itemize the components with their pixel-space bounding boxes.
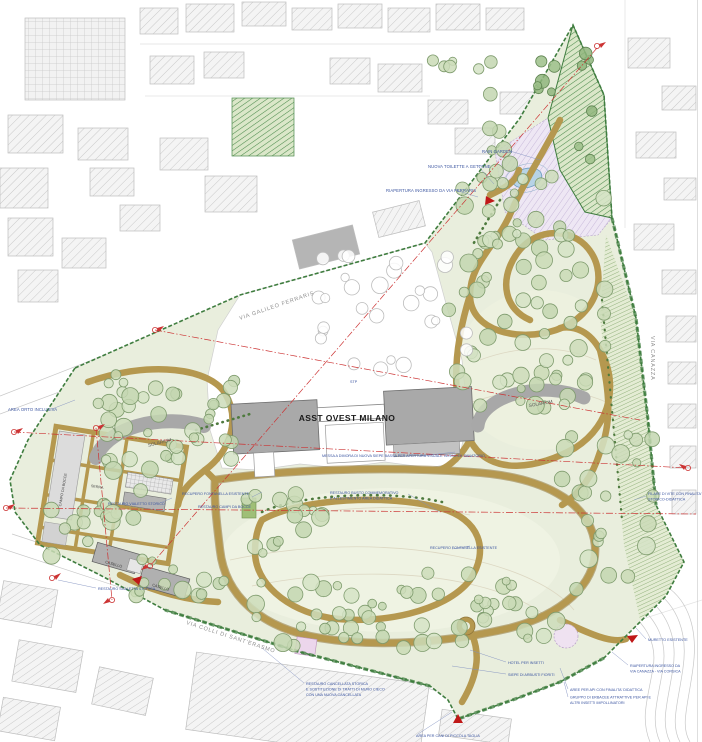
tree: [621, 570, 635, 584]
tree: [397, 641, 411, 655]
tree: [529, 377, 544, 392]
tree: [483, 121, 498, 136]
building-block: [8, 115, 63, 153]
label-area-orto: AREA ORTO INCLUSIVA: [8, 407, 57, 412]
tree: [559, 399, 570, 410]
building-block: [120, 205, 160, 231]
tree: [396, 357, 411, 372]
building-block: [18, 270, 58, 302]
tree: [126, 510, 141, 525]
tree: [560, 269, 572, 281]
tree: [401, 586, 413, 598]
tree: [138, 392, 150, 404]
building-block: [373, 201, 426, 238]
tree: [540, 354, 554, 368]
tree: [318, 322, 330, 334]
tree: [161, 450, 172, 461]
tree: [196, 589, 207, 600]
building-block: [388, 8, 430, 32]
label-ingresso-sud-2: VIA CANAZZA - VIA CORSICA: [630, 670, 681, 674]
tree: [252, 613, 261, 622]
building-block: [186, 4, 234, 32]
tree: [423, 287, 437, 301]
tree: [513, 230, 521, 238]
building-block: [670, 446, 696, 468]
tree: [111, 370, 121, 380]
tree: [151, 407, 167, 423]
tree: [596, 190, 612, 206]
tree: [518, 174, 529, 185]
hospital-west-wing: [231, 400, 319, 454]
tree: [474, 64, 484, 74]
tree: [204, 414, 214, 424]
tree: [497, 178, 508, 189]
tree: [415, 286, 425, 296]
building-block: [25, 18, 125, 100]
tree: [504, 197, 519, 212]
tree: [580, 470, 597, 487]
tree: [532, 275, 547, 290]
tree: [451, 620, 467, 636]
tree: [579, 47, 592, 60]
tree: [477, 613, 491, 627]
tree: [257, 579, 266, 588]
tree: [461, 567, 476, 582]
tree: [197, 572, 212, 587]
tree: [572, 262, 588, 278]
tree: [43, 547, 60, 564]
tree: [259, 549, 268, 558]
building-block: [634, 224, 674, 250]
tree: [513, 367, 529, 383]
building-block: [636, 132, 676, 158]
tree: [556, 439, 574, 457]
tree: [543, 304, 558, 319]
label-stp: STP: [350, 380, 358, 384]
tree: [570, 340, 587, 357]
building-block: [428, 100, 468, 124]
tree: [104, 462, 122, 480]
label-filare-2: STORICO-DIDATTICA: [648, 498, 686, 502]
tree: [134, 484, 148, 498]
building-block: [92, 667, 154, 716]
tree: [344, 588, 359, 603]
building-block: [78, 128, 128, 160]
tree: [376, 630, 389, 643]
tree: [493, 375, 507, 389]
tree: [578, 486, 591, 499]
tree: [460, 254, 478, 272]
tree: [485, 56, 498, 69]
tree: [575, 142, 584, 151]
label-filare-1: FILARE DI VITE CON FINALITA': [648, 492, 702, 496]
tree: [342, 250, 355, 263]
building-block: [668, 362, 696, 384]
tree: [315, 333, 326, 344]
tree: [612, 445, 630, 463]
tree: [333, 607, 347, 621]
building-block: [204, 52, 244, 78]
tree: [483, 177, 498, 192]
tree: [273, 492, 288, 507]
tree: [563, 230, 575, 242]
tree: [249, 489, 262, 502]
tree: [624, 431, 633, 440]
label-fontanella-1: RECUPERO FONTANELLA ESISTENTE: [182, 492, 250, 496]
tree: [312, 509, 330, 527]
tree: [224, 452, 239, 467]
tree: [585, 154, 595, 164]
label-siepe: SIEPE DI ARBUSTI FIORITI: [508, 673, 555, 677]
tree: [645, 432, 660, 447]
tree: [189, 433, 199, 443]
building-block: [330, 58, 370, 84]
building-block: [242, 2, 286, 26]
label-busto-2: E ALLESTIMENTO AREA DIDATTICA: [330, 497, 393, 501]
tree: [142, 461, 159, 478]
tree: [536, 252, 553, 269]
label-ingresso-sud-1: RIAPERTURA INGRESSO DA: [630, 664, 681, 668]
tree: [321, 294, 330, 303]
tree: [535, 178, 547, 190]
tree: [510, 189, 518, 197]
building-block: [205, 176, 257, 212]
tree: [137, 554, 148, 565]
tree: [460, 327, 472, 339]
tree: [601, 567, 617, 583]
label-busto-1: RESTAURO BUSTO COMMEMORATIVO: [330, 491, 399, 495]
tree: [219, 434, 231, 446]
central-lawn: [220, 488, 560, 632]
tree: [482, 272, 492, 282]
tree: [320, 623, 331, 634]
tree: [427, 55, 438, 66]
tree: [599, 340, 611, 352]
building-block: [160, 138, 208, 170]
building-block: [62, 238, 106, 268]
tree: [426, 633, 442, 649]
tree: [545, 170, 558, 183]
tree: [577, 375, 592, 390]
tree: [539, 329, 549, 339]
tree: [587, 106, 598, 117]
tree: [528, 211, 544, 227]
tree: [333, 581, 342, 590]
tree: [372, 277, 389, 294]
tree: [564, 316, 577, 329]
tree: [247, 595, 265, 613]
label-erbacee-2: ALTRI INSETTI IMPOLLINATORI: [570, 701, 625, 705]
tree: [480, 329, 497, 346]
tree: [547, 88, 555, 96]
tree: [638, 537, 656, 555]
tree: [432, 317, 440, 325]
building-block: [662, 86, 696, 110]
tree: [311, 609, 322, 620]
tree: [166, 387, 180, 401]
tree: [344, 280, 359, 295]
building-block: [486, 8, 524, 30]
label-campi-bocce: RESTAURO CAMPI DA BOCCE: [198, 505, 252, 509]
tree: [534, 82, 542, 90]
building-block: [12, 640, 83, 693]
label-asst-ovest-milano: ASST OVEST MILANO: [299, 413, 396, 423]
label-erbacee-1: GRUPPO DI ERBACEE ATTRATTIVE PER API E: [570, 696, 652, 700]
building-block: [662, 270, 696, 294]
tree: [414, 618, 429, 633]
building-block: [664, 178, 696, 200]
tree: [442, 303, 456, 317]
tree: [356, 303, 368, 315]
tree: [288, 487, 303, 502]
tree: [169, 565, 178, 574]
tree: [441, 251, 453, 263]
tree: [422, 567, 434, 579]
label-muretto: MURETTO ESISTENTE: [648, 638, 688, 642]
building-block: [0, 697, 61, 741]
tree: [122, 452, 137, 467]
building-block: [0, 168, 48, 208]
tree: [339, 632, 349, 642]
tree: [597, 281, 613, 297]
tree: [403, 295, 419, 311]
building-block: [8, 218, 53, 256]
label-vialetto: RESTAURO VIALETTO STORICO: [108, 502, 165, 506]
building-block: [90, 168, 134, 196]
tree: [104, 379, 113, 388]
tree: [531, 297, 543, 309]
label-cancellata-3: CON UNA NUOVA CANCELLATA: [306, 693, 362, 697]
building-block: [338, 4, 382, 28]
label-cancellata-2: E SOSTITUZIONE DI TRATTI DI MURO CIECO: [306, 688, 385, 692]
tree: [444, 60, 457, 73]
tree: [119, 378, 128, 387]
tree: [498, 314, 513, 329]
tree: [469, 282, 485, 298]
label-cancellata-1: RESTAURO CANCELLATA STORICA: [306, 682, 369, 686]
tree: [640, 516, 656, 532]
hospital-east-wing: [384, 387, 475, 446]
label-messa-dimora: MESSA A DIMORA DI NUOVA SIEPE BASSA PER …: [322, 454, 485, 458]
tree: [526, 607, 538, 619]
hospital-annex: [254, 452, 275, 477]
tree: [580, 550, 598, 568]
label-rain-garden: RAIN GARDEN: [482, 149, 512, 154]
tree: [352, 633, 363, 644]
green-block: [232, 98, 294, 156]
tree: [273, 536, 283, 546]
building-block: [378, 64, 422, 92]
tree: [513, 219, 521, 227]
tree: [174, 581, 191, 598]
building-block: [668, 404, 696, 428]
tree: [558, 241, 574, 257]
tree: [44, 502, 60, 518]
building-block: [150, 56, 194, 84]
label-ingresso-ferraris: RIAPERTURA INGRESSO DA VIA FERRARIS: [386, 188, 476, 193]
tree: [503, 596, 516, 609]
masterplan-canvas: AREA ORTO INCLUSIVA RAIN GARDEN NUOVA TO…: [0, 0, 702, 742]
tree: [516, 293, 531, 308]
tree: [474, 595, 483, 604]
tree: [296, 622, 305, 631]
tree: [502, 156, 517, 171]
tree: [387, 356, 396, 365]
tree: [547, 612, 565, 630]
tree: [362, 611, 376, 625]
tree: [515, 335, 531, 351]
tree: [483, 87, 497, 101]
tree: [493, 239, 503, 249]
label-area-cani: AREA PER CANI DI PICCOLA TAGLIA: [416, 734, 480, 738]
tree: [524, 634, 532, 642]
tree: [482, 205, 495, 218]
building-block: [0, 581, 58, 628]
building-block: [436, 4, 480, 30]
tree: [598, 307, 611, 320]
tree: [296, 522, 312, 538]
tree: [287, 508, 303, 524]
label-aree-api: AREE PER API CON FINALITA' DIDATTICA: [570, 688, 643, 692]
tree: [601, 491, 611, 501]
tree: [575, 300, 587, 312]
tree: [208, 398, 219, 409]
tree: [303, 574, 320, 591]
tree: [317, 252, 330, 265]
building-block: [628, 38, 670, 68]
tree: [144, 429, 152, 437]
tree: [368, 599, 377, 608]
tree: [274, 634, 292, 652]
label-scaletta: RESTAURO SCALETTA STORICA: [98, 587, 156, 591]
tree: [536, 628, 551, 643]
tree: [370, 309, 384, 323]
tree: [548, 61, 560, 73]
tree: [219, 576, 229, 586]
tree: [114, 432, 123, 441]
tree: [83, 536, 94, 547]
tree: [223, 380, 237, 394]
tree: [77, 516, 90, 529]
building-block: [140, 8, 178, 34]
tree: [554, 471, 570, 487]
tree: [516, 259, 531, 274]
tree: [582, 515, 594, 527]
tree: [502, 577, 510, 585]
tree: [455, 634, 468, 647]
tree: [517, 385, 525, 393]
label-fontanella-2: RECUPERO FONTANELLA ESISTENTE: [430, 546, 498, 550]
tree: [536, 56, 547, 67]
site-plan-drawing: AREA ORTO INCLUSIVA RAIN GARDEN NUOVA TO…: [0, 0, 702, 742]
tree: [432, 588, 444, 600]
tree: [563, 355, 573, 365]
tree: [459, 287, 469, 297]
tree: [374, 362, 388, 376]
tree: [59, 523, 70, 534]
building-block: [666, 316, 696, 342]
tree: [389, 256, 403, 270]
tree: [596, 528, 607, 539]
tree: [288, 587, 303, 602]
building-block: [292, 8, 332, 30]
tree: [122, 388, 139, 405]
tree: [104, 505, 122, 523]
label-hotel-insetti: HOTEL PER INSETTI: [508, 661, 544, 665]
tree: [570, 583, 583, 596]
tree: [474, 399, 487, 412]
tree: [489, 164, 503, 178]
label-toilette: NUOVA TOILETTE A GETTONE: [428, 164, 491, 169]
label-via-canazza: VIA CANAZZA: [649, 336, 655, 381]
tree: [378, 602, 386, 610]
tree: [460, 344, 472, 356]
tree: [456, 197, 473, 214]
tree: [148, 381, 163, 396]
tree: [550, 373, 562, 385]
tree: [93, 398, 103, 408]
